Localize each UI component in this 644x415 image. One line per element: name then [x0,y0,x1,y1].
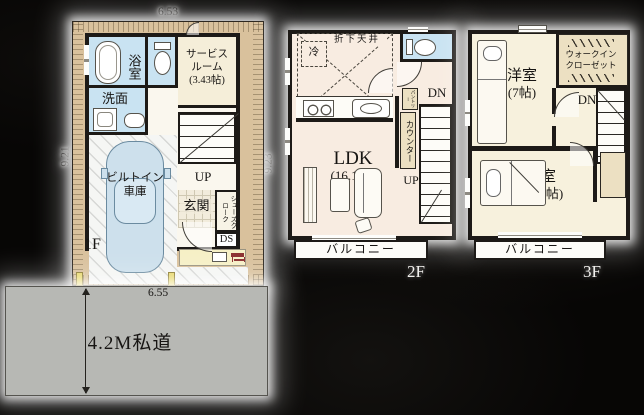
table-icon [330,178,350,212]
pantry-label: パントリー [405,89,415,109]
bathtub-icon [95,41,121,84]
bathroom-label: 浴室 [126,45,141,89]
kitchen-sink-icon [352,99,390,118]
shoe-closet-label: シューズクローク [218,194,236,230]
wall-3f-hall [593,150,597,202]
service-room-label-1: サービス [178,49,236,61]
road-arrow-top-icon [82,288,90,295]
floorplan-image: 6.53 9.21 9.23 浴室 洗面 サービス ルーム (3.43帖) UP… [0,0,644,415]
bed-icon-3f-a [477,40,507,144]
bench-legs-icon [232,257,245,262]
window-3f-top [518,25,547,33]
car-icon [106,141,164,273]
road-label: 4.2M私道 [55,333,205,354]
washroom-label: 洗面 [94,92,136,107]
entrance-label: 玄関 [180,199,213,214]
floor-label-1f: 1F [84,236,114,254]
wash-basin-icon [124,113,145,128]
floor-label-2f: 2F [398,262,434,281]
gate-post-left [76,272,83,286]
sofa-icon [354,168,382,218]
wic-label-1: ウォークイン [556,50,626,60]
window-3f-left-lower [465,178,470,208]
road-dimension-label: 6.55 [135,287,181,300]
garage-label-2: 車庫 [105,186,165,199]
wic-label-2: クローゼット [556,61,626,71]
toilet-bowl-icon [154,51,171,75]
service-room-label-3: (3.43帖) [178,75,236,87]
car-mirror-right-icon [164,168,171,179]
window-3f-left-upper [465,100,470,126]
toilet-2f-bowl-icon [414,39,436,56]
service-room-label-2: ルーム [178,62,236,74]
floor-label-3f: 3F [574,262,610,281]
doormat-icon [212,252,227,262]
wall-2f-hall [395,96,399,168]
counter-label: カウンター [402,115,414,167]
ldk-label: LDK [318,148,388,169]
wic-hanger-marks-bottom [568,74,614,82]
refrigerator-label: 冷 [301,47,327,59]
tv-board-icon [303,167,317,223]
dimension-top-1f: 6.53 [140,6,196,19]
washing-machine-icon [93,108,117,131]
window-2f-left-lower [285,128,290,155]
window-1f-bath [84,45,89,75]
stairs-dn-label-2f: DN [423,86,451,101]
wic-hanger-marks-top [568,39,614,47]
balcony-3f-label: バルコニー [474,243,606,256]
toilet-2f-tank-icon [406,39,413,55]
duct-space-label: DS [214,234,239,246]
dropped-ceiling-label: 折下天井 [327,35,387,46]
window-3f-balcony [498,232,582,238]
window-2f-toilet [408,27,428,32]
window-2f-left-upper [285,58,290,85]
closet-3f [600,152,626,198]
stove-icon [303,100,334,117]
dimension-left-1f: 9.21 [60,136,73,176]
stairs-up-label-2f: UP [398,174,424,187]
driveway [177,267,248,284]
gate-post-right [168,272,175,286]
stairs-2f [419,104,452,224]
balcony-2f-label: バルコニー [294,243,428,256]
toilet-tank-icon [154,42,171,50]
road-arrow-bottom-icon [82,387,90,394]
stairs-up-label-1f: UP [188,170,218,185]
dimension-right-1f: 9.23 [263,143,276,183]
garage-label-1: ビルトイン [105,172,165,185]
